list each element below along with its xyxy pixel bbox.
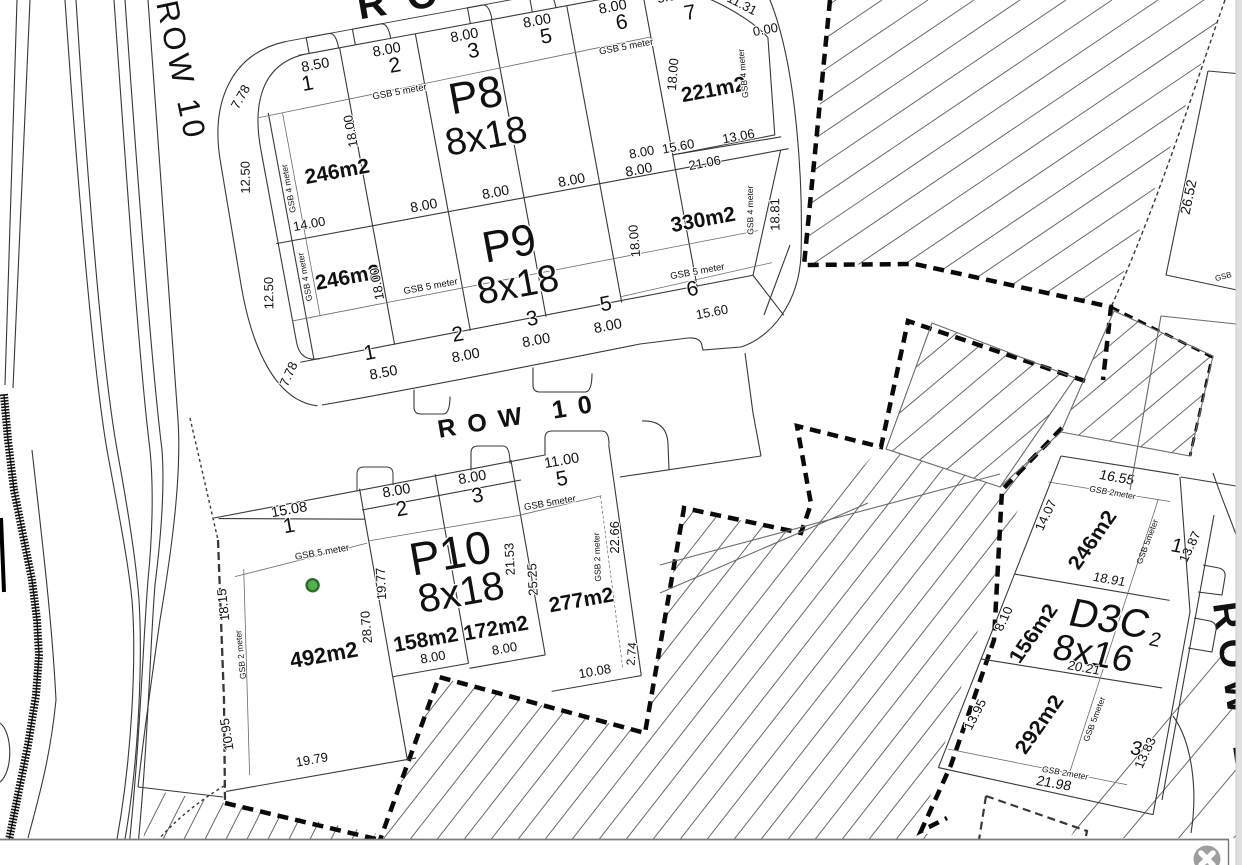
svg-text:19.77: 19.77 [373, 567, 390, 600]
svg-text:18.81: 18.81 [767, 198, 782, 231]
svg-text:12.50: 12.50 [238, 161, 253, 194]
svg-text:28.70: 28.70 [357, 610, 375, 644]
svg-text:18.00: 18.00 [625, 224, 643, 258]
svg-text:GSB 4 meter: GSB 4 meter [745, 185, 755, 234]
svg-text:22.66: 22.66 [607, 521, 622, 554]
svg-text:21.53: 21.53 [501, 542, 518, 575]
svg-text:18.00: 18.00 [664, 58, 682, 92]
svg-text:25.25: 25.25 [524, 563, 541, 596]
svg-text:12.50: 12.50 [261, 277, 276, 310]
svg-text:2.74: 2.74 [624, 641, 640, 666]
svg-text:GSB 2 meter: GSB 2 meter [591, 532, 603, 582]
